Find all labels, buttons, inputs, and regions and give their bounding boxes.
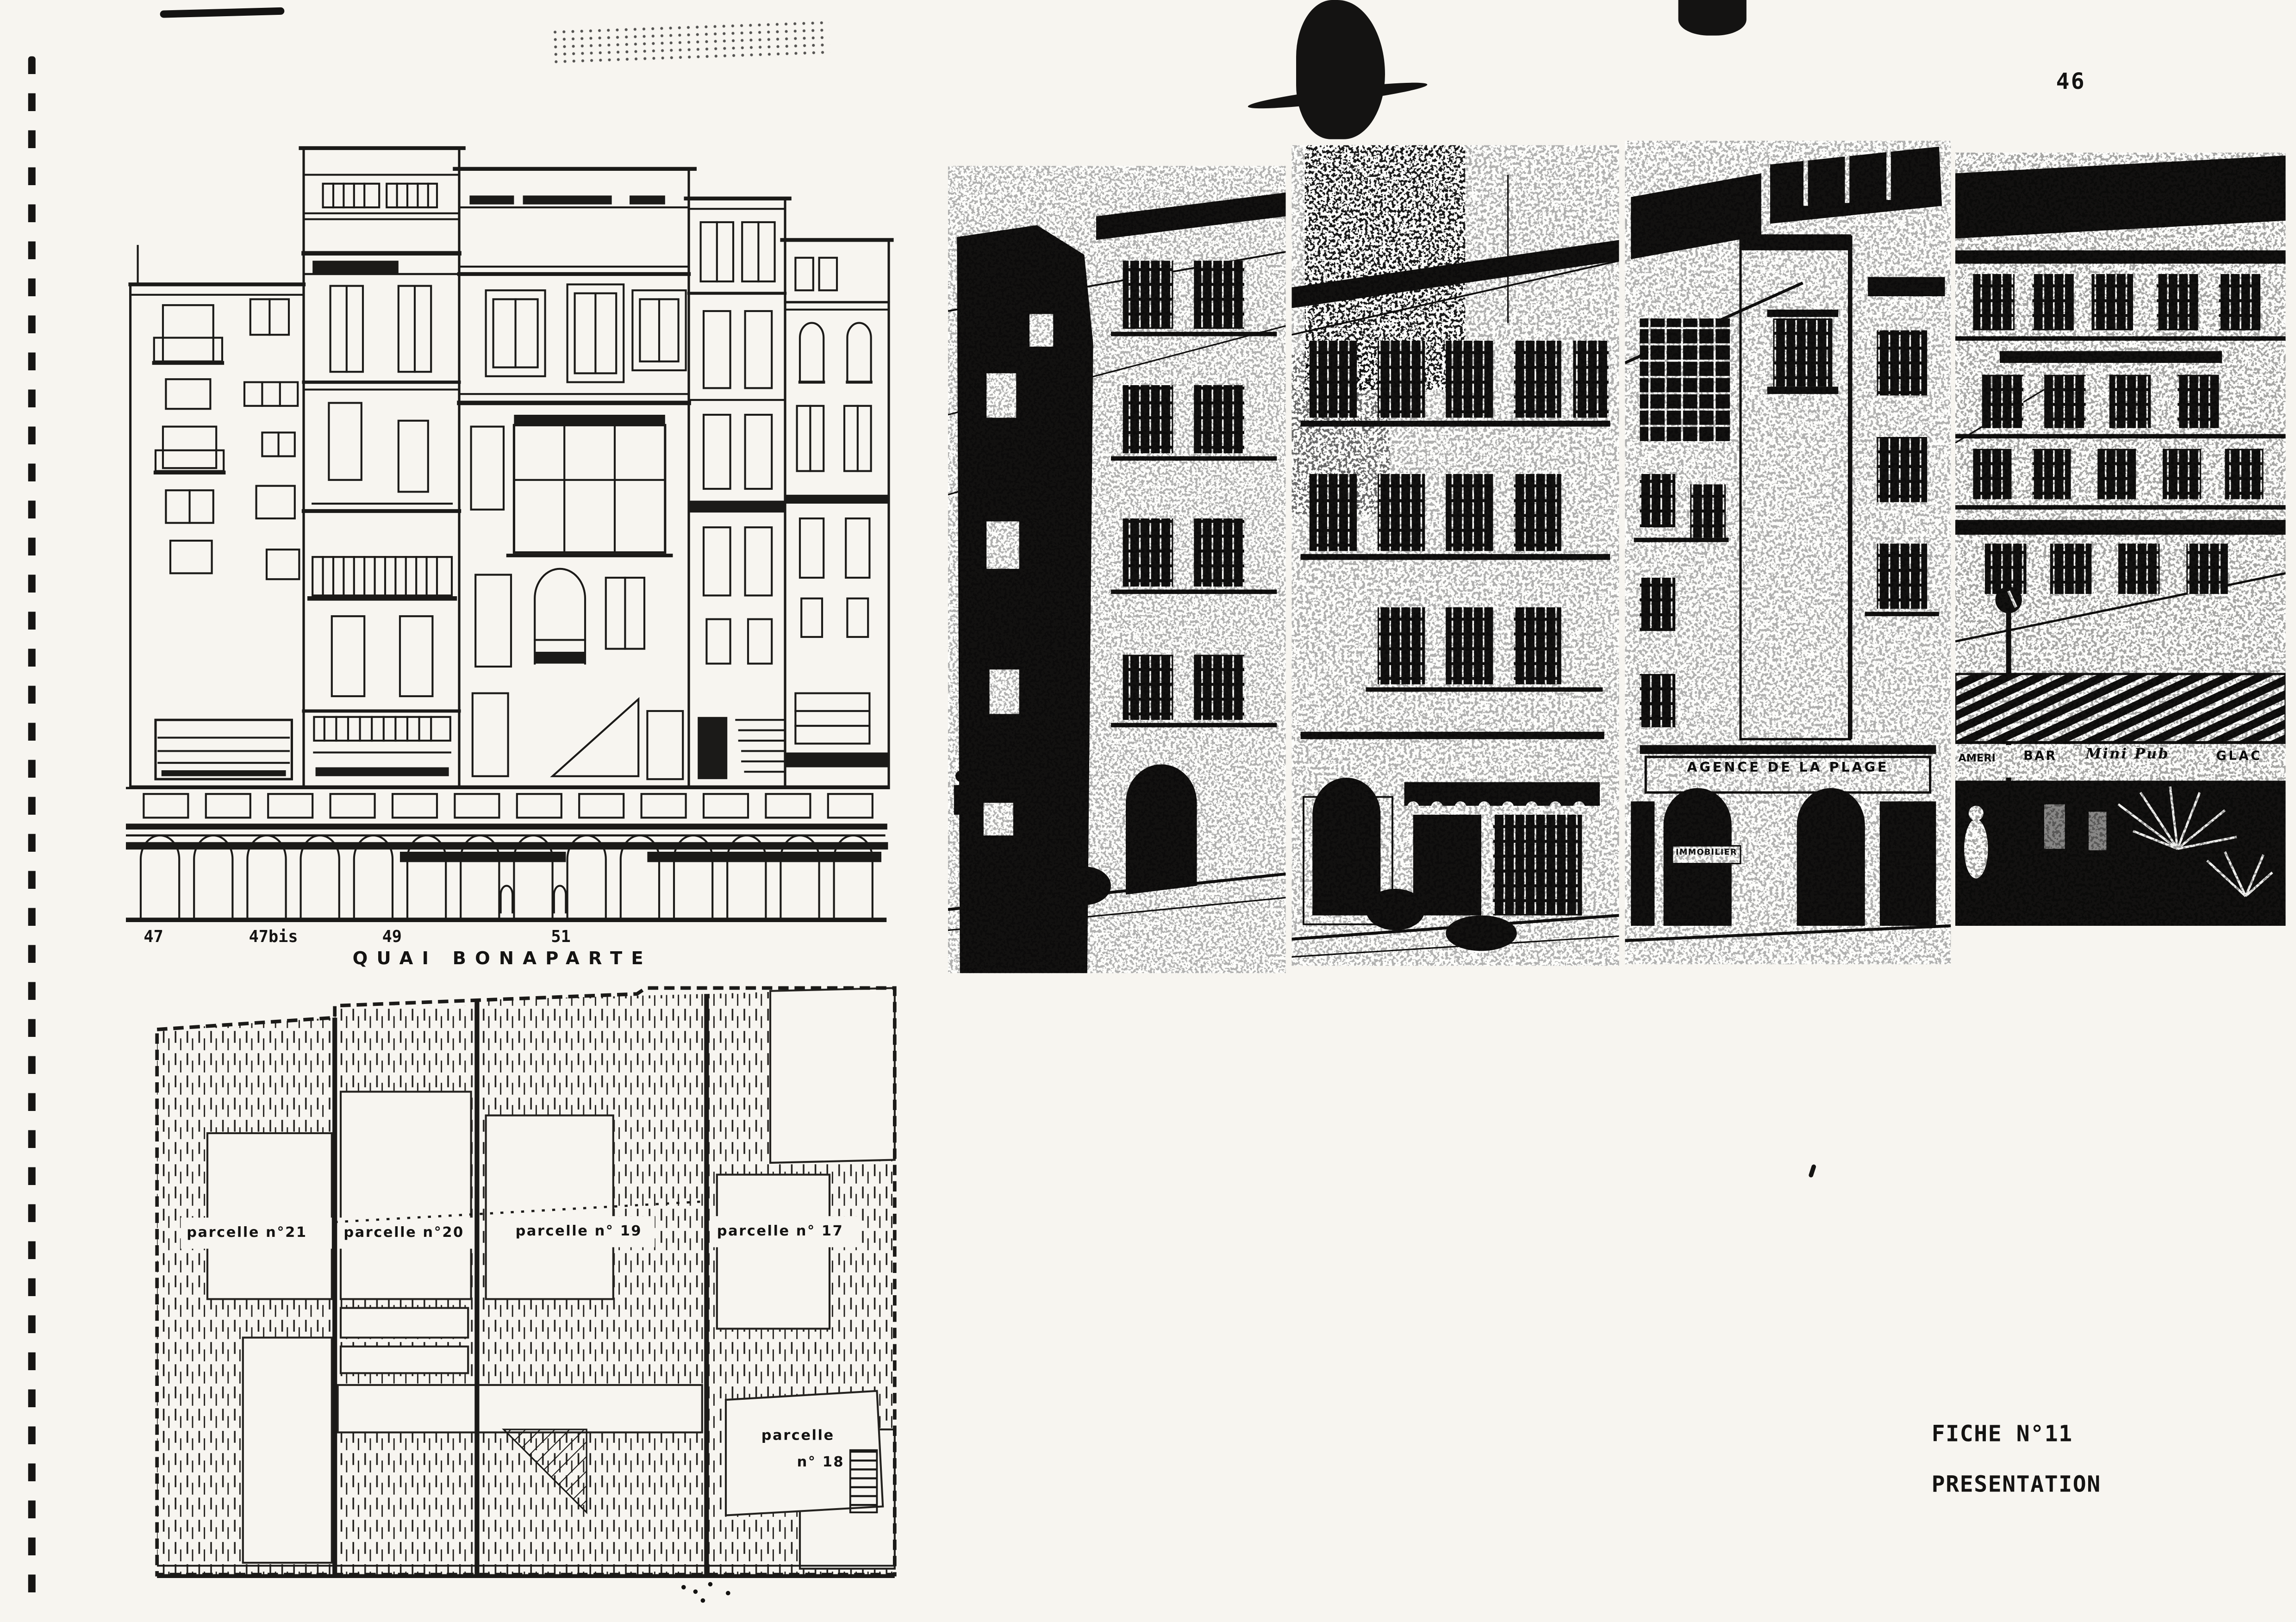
binding-holes <box>28 56 36 1603</box>
photo-facade-4: AMERI BAR Mini Pub GLAC <box>1955 153 2286 926</box>
scanned-page: 46 <box>0 0 2296 1622</box>
parcel-plan-svg <box>148 985 906 1595</box>
storefront-sign-immobilier: IMMOBILIER <box>1672 849 1741 858</box>
parcel-label-21: parcelle n°21 <box>187 1225 307 1241</box>
street-label: QUAI BONAPARTE <box>353 948 652 969</box>
storefront-sign-glaces: GLAC <box>2216 751 2262 765</box>
scan-blob-artifact <box>1678 0 1747 36</box>
parcel-label-18-line1: parcelle <box>761 1428 835 1444</box>
photo-facade-3: AGENCE DE LA PLAGE IMMOBILIER <box>1625 141 1951 964</box>
photo-facade-2 <box>1291 145 1619 966</box>
address-label-49: 49 <box>382 927 402 947</box>
parcel-plan-drawing: parcelle n°21 parcelle n°20 parcelle n° … <box>148 985 906 1595</box>
storefront-sign-minipub: Mini Pub <box>2086 748 2170 763</box>
scan-stipple-artifact <box>550 19 830 64</box>
parcel-label-18-line2: n° 18 <box>797 1454 845 1471</box>
photo-facade-1 <box>948 166 1286 973</box>
storefront-sign-bar: BAR <box>2023 751 2057 765</box>
scan-blob-artifact <box>1296 0 1385 139</box>
parcel-label-17: parcelle n° 17 <box>717 1223 844 1240</box>
page-number: 46 <box>2056 68 2086 95</box>
fiche-caption: FICHE N°11 PRESENTATION <box>1932 1409 2101 1510</box>
scan-specks-artifact <box>681 1585 686 1590</box>
fiche-subtitle: PRESENTATION <box>1932 1459 2101 1510</box>
scanned-page-viewport: 46 <box>0 0 2296 1622</box>
storefront-sign-agence: AGENCE DE LA PLAGE <box>1649 763 1928 778</box>
parcel-label-19: parcelle n° 19 <box>516 1223 643 1240</box>
elevation-svg <box>126 131 896 997</box>
elevation-drawing: 47 47bis 49 51 QUAI BONAPARTE <box>126 131 896 997</box>
scan-mark-artifact <box>1808 1164 1816 1178</box>
scan-smear-artifact <box>160 7 284 18</box>
address-label-51: 51 <box>551 927 570 947</box>
parcel-label-20: parcelle n°20 <box>343 1225 464 1241</box>
fiche-title: FICHE N°11 <box>1932 1409 2101 1459</box>
storefront-sign-ameri: AMERI <box>1958 754 1996 766</box>
address-label-47bis: 47bis <box>249 927 298 947</box>
address-label-47: 47 <box>143 927 163 947</box>
